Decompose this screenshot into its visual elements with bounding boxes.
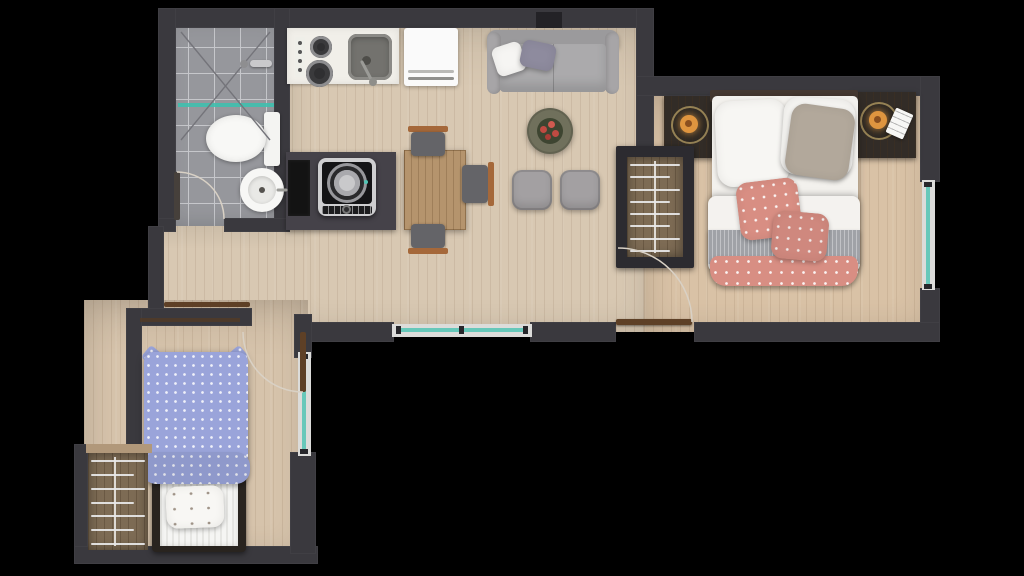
wardrobe-small-top-frame	[86, 444, 152, 453]
hanger	[630, 201, 670, 203]
wall-small-bedroom-top	[126, 308, 252, 326]
kitchen-sink	[348, 34, 392, 80]
hanger	[91, 460, 145, 462]
pouf-right	[560, 170, 600, 210]
wardrobe-small	[86, 444, 152, 552]
hanger	[630, 225, 670, 227]
hanger	[91, 488, 145, 490]
small-bedroom-door-leaf	[300, 332, 306, 392]
chair-seat	[411, 224, 445, 248]
wall-bathroom-bottom-right	[224, 218, 290, 232]
chair-seat	[462, 165, 488, 203]
sliding-door-panel	[164, 302, 250, 307]
sliding-door-track	[140, 318, 240, 322]
wall-small-bedroom-left-upper	[126, 308, 142, 456]
dining-chair-bottom	[408, 224, 448, 254]
window-bottom-clip-1	[396, 326, 401, 334]
washer-knob	[342, 205, 351, 214]
cooktop	[294, 34, 342, 80]
dining-table	[404, 150, 466, 230]
pillow-taupe	[783, 102, 856, 182]
sheet-ruffle	[710, 256, 858, 286]
toilet-bowl	[206, 115, 266, 162]
window-right-glass	[926, 184, 930, 286]
bed2-pillow	[165, 485, 224, 529]
hanger	[91, 502, 134, 504]
wall-top	[158, 8, 654, 28]
shower-glass-screen	[178, 103, 274, 107]
bed2-duvet	[144, 352, 248, 466]
wardrobe-small-interior	[88, 453, 148, 550]
chair-seat	[411, 132, 445, 156]
coffee-table	[527, 108, 573, 154]
hanger	[630, 238, 680, 240]
dining-chair-right	[462, 162, 494, 206]
basin-drain	[259, 187, 265, 193]
wardrobe-small-hangers	[88, 453, 148, 550]
hanger	[630, 213, 680, 215]
wall-right-upper	[920, 76, 940, 182]
window-right-clip-1	[924, 182, 932, 187]
double-bed	[708, 90, 860, 288]
wall-small-bedroom-right-lower	[290, 452, 316, 554]
window-shadow-behind-sofa	[536, 12, 562, 28]
bathroom-door-leaf	[174, 172, 180, 220]
wall-bottom-right-segment	[694, 322, 940, 342]
wardrobe-main-interior	[627, 157, 683, 257]
chair-back-bar	[488, 162, 494, 206]
pillow-pink-small	[770, 210, 830, 263]
hanger	[91, 515, 145, 517]
burner-large	[306, 60, 333, 87]
window-bottom-clip-2	[459, 326, 464, 334]
wardrobe-main	[616, 146, 694, 268]
fridge-vent-2	[408, 77, 454, 80]
refrigerator	[404, 28, 458, 86]
window-bottom-clip-3	[523, 326, 528, 334]
bed2-duvet-fold	[142, 452, 250, 484]
chair-back-bar	[408, 248, 448, 254]
plant	[537, 118, 563, 144]
toilet	[206, 112, 280, 166]
dining-chair-top	[408, 126, 448, 156]
sofa-armrest-right	[605, 32, 619, 94]
washing-machine	[318, 158, 376, 216]
hanger	[91, 474, 134, 476]
washer-indicator	[364, 180, 368, 184]
hanger	[630, 250, 670, 252]
wall-bottom-mid-segment	[530, 322, 616, 342]
washer-drum-inner	[334, 170, 360, 196]
wardrobe-main-hangers	[627, 157, 683, 257]
hanger	[630, 164, 680, 166]
sink-drain	[362, 56, 371, 65]
tall-cabinet	[288, 160, 310, 216]
hanger	[630, 176, 670, 178]
washbasin	[240, 168, 286, 214]
shower-handle	[250, 60, 272, 67]
wall-bottom-left-segment	[306, 322, 394, 342]
wall-corridor-left	[148, 226, 164, 314]
hanger	[91, 529, 134, 531]
entrance-door-leaf	[616, 319, 692, 325]
floor-plan	[0, 0, 1024, 576]
window-small-clip-2	[300, 449, 308, 454]
window-right-clip-2	[924, 284, 932, 289]
hanger	[91, 543, 145, 545]
burner-small	[310, 36, 332, 58]
hanger	[630, 189, 680, 191]
cooktop-knobs	[295, 37, 305, 77]
toilet-tank	[264, 112, 280, 166]
nightstand-right	[852, 92, 916, 158]
single-bed	[142, 348, 250, 554]
sofa	[487, 30, 619, 94]
fridge-vent-1	[408, 70, 454, 73]
lamp-left-center	[685, 120, 692, 127]
pillow-white-left	[714, 98, 790, 188]
pouf-left	[512, 170, 552, 210]
lamp-right-center	[874, 116, 881, 123]
